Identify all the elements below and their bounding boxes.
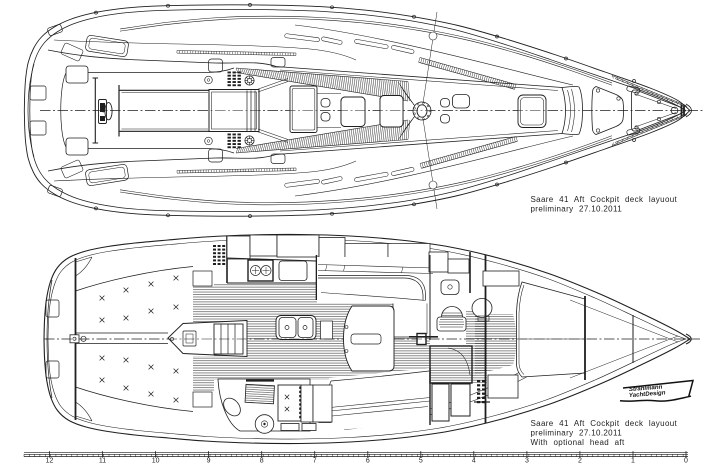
svg-text:12: 12	[46, 458, 54, 465]
svg-text:9: 9	[207, 458, 211, 465]
svg-text:5: 5	[419, 458, 423, 465]
svg-text:11: 11	[99, 458, 106, 465]
svg-text:7: 7	[313, 458, 317, 465]
svg-text:With optional head aft: With optional head aft	[531, 438, 626, 447]
svg-text:preliminary 27.10.2011: preliminary 27.10.2011	[531, 429, 623, 438]
svg-text:8: 8	[260, 458, 264, 465]
svg-text:3: 3	[525, 458, 529, 465]
svg-text:Saare 41 Aft Cockpit deck layu: Saare 41 Aft Cockpit deck layuout	[531, 419, 678, 428]
svg-text:2: 2	[578, 458, 582, 465]
svg-text:preliminary 27.10.2011: preliminary 27.10.2011	[531, 205, 623, 214]
svg-text:Saare 41 Aft Cockpit deck layu: Saare 41 Aft Cockpit deck layuout	[531, 195, 678, 204]
svg-text:1: 1	[631, 458, 635, 465]
svg-text:4: 4	[472, 458, 476, 465]
svg-text:10: 10	[152, 458, 160, 465]
svg-text:6: 6	[366, 458, 370, 465]
svg-text:0: 0	[684, 458, 688, 465]
